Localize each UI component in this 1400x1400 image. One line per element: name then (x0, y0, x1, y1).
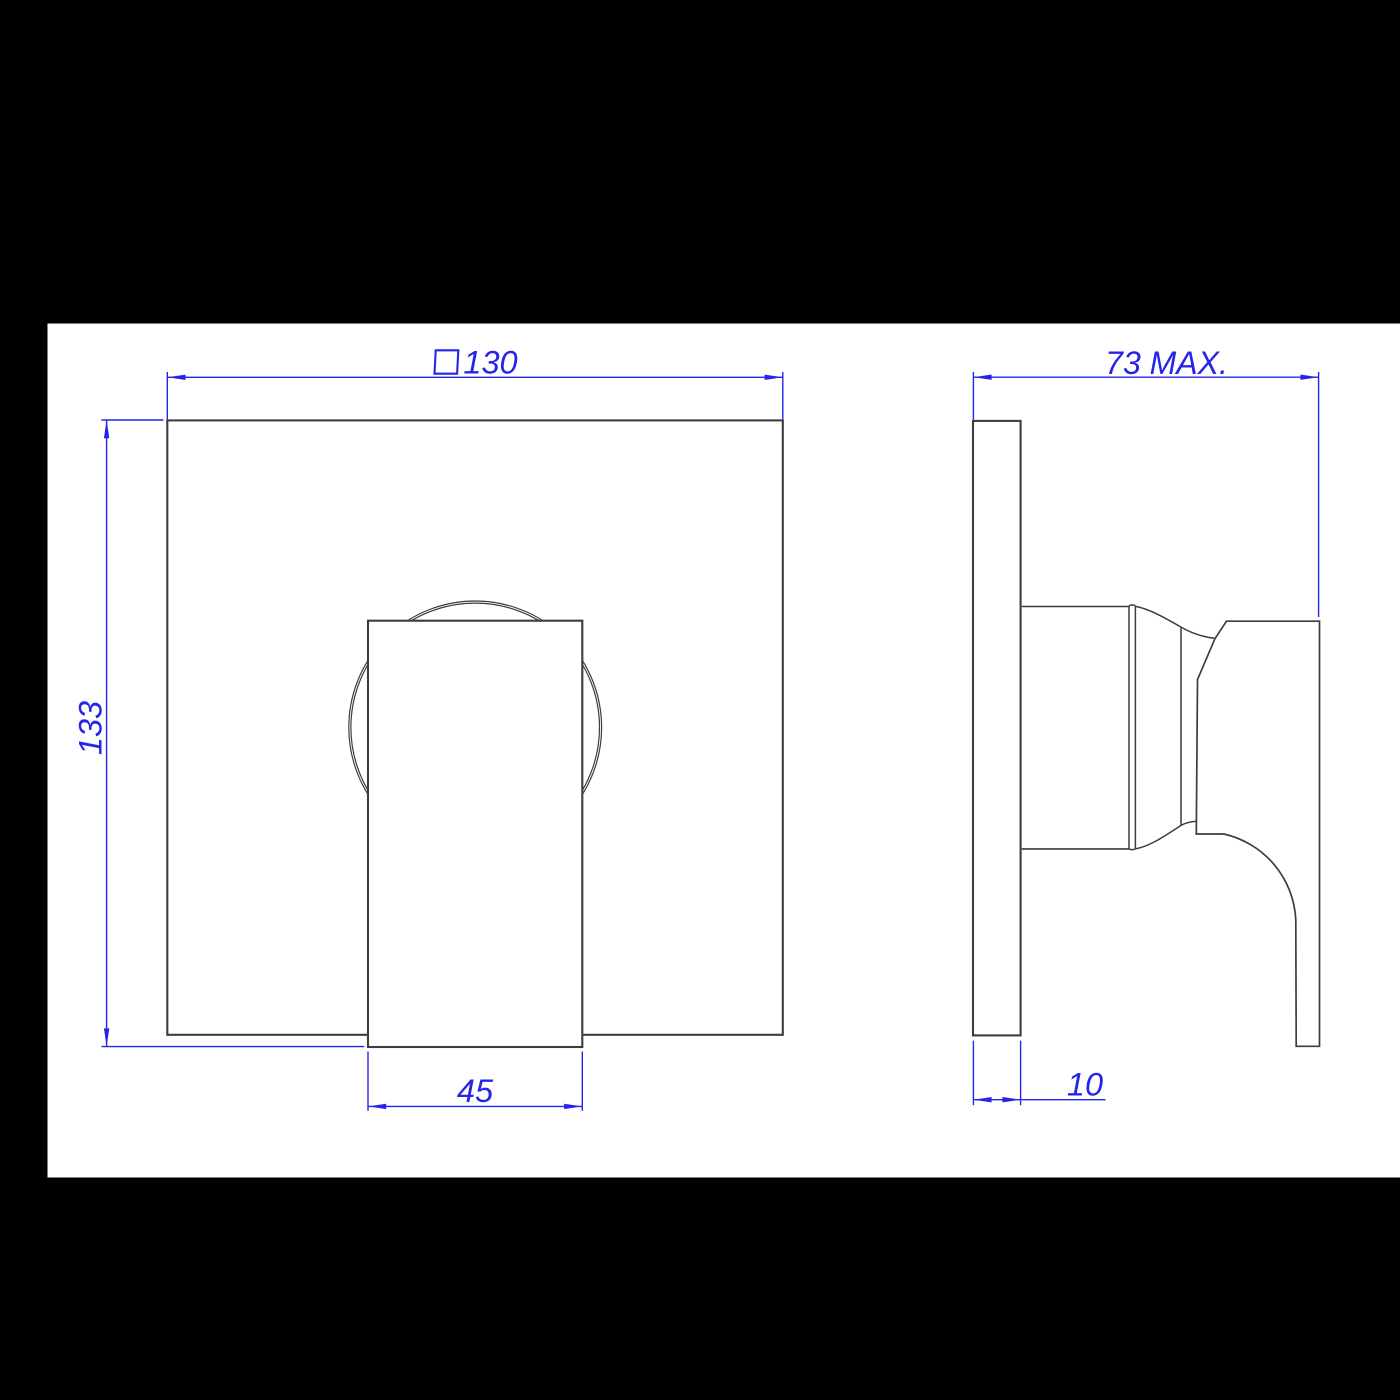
svg-text:73 MAX.: 73 MAX. (1105, 345, 1228, 381)
svg-text:45: 45 (457, 1073, 494, 1109)
svg-text:130: 130 (463, 345, 517, 381)
svg-text:10: 10 (1067, 1066, 1103, 1102)
svg-text:133: 133 (73, 701, 109, 755)
